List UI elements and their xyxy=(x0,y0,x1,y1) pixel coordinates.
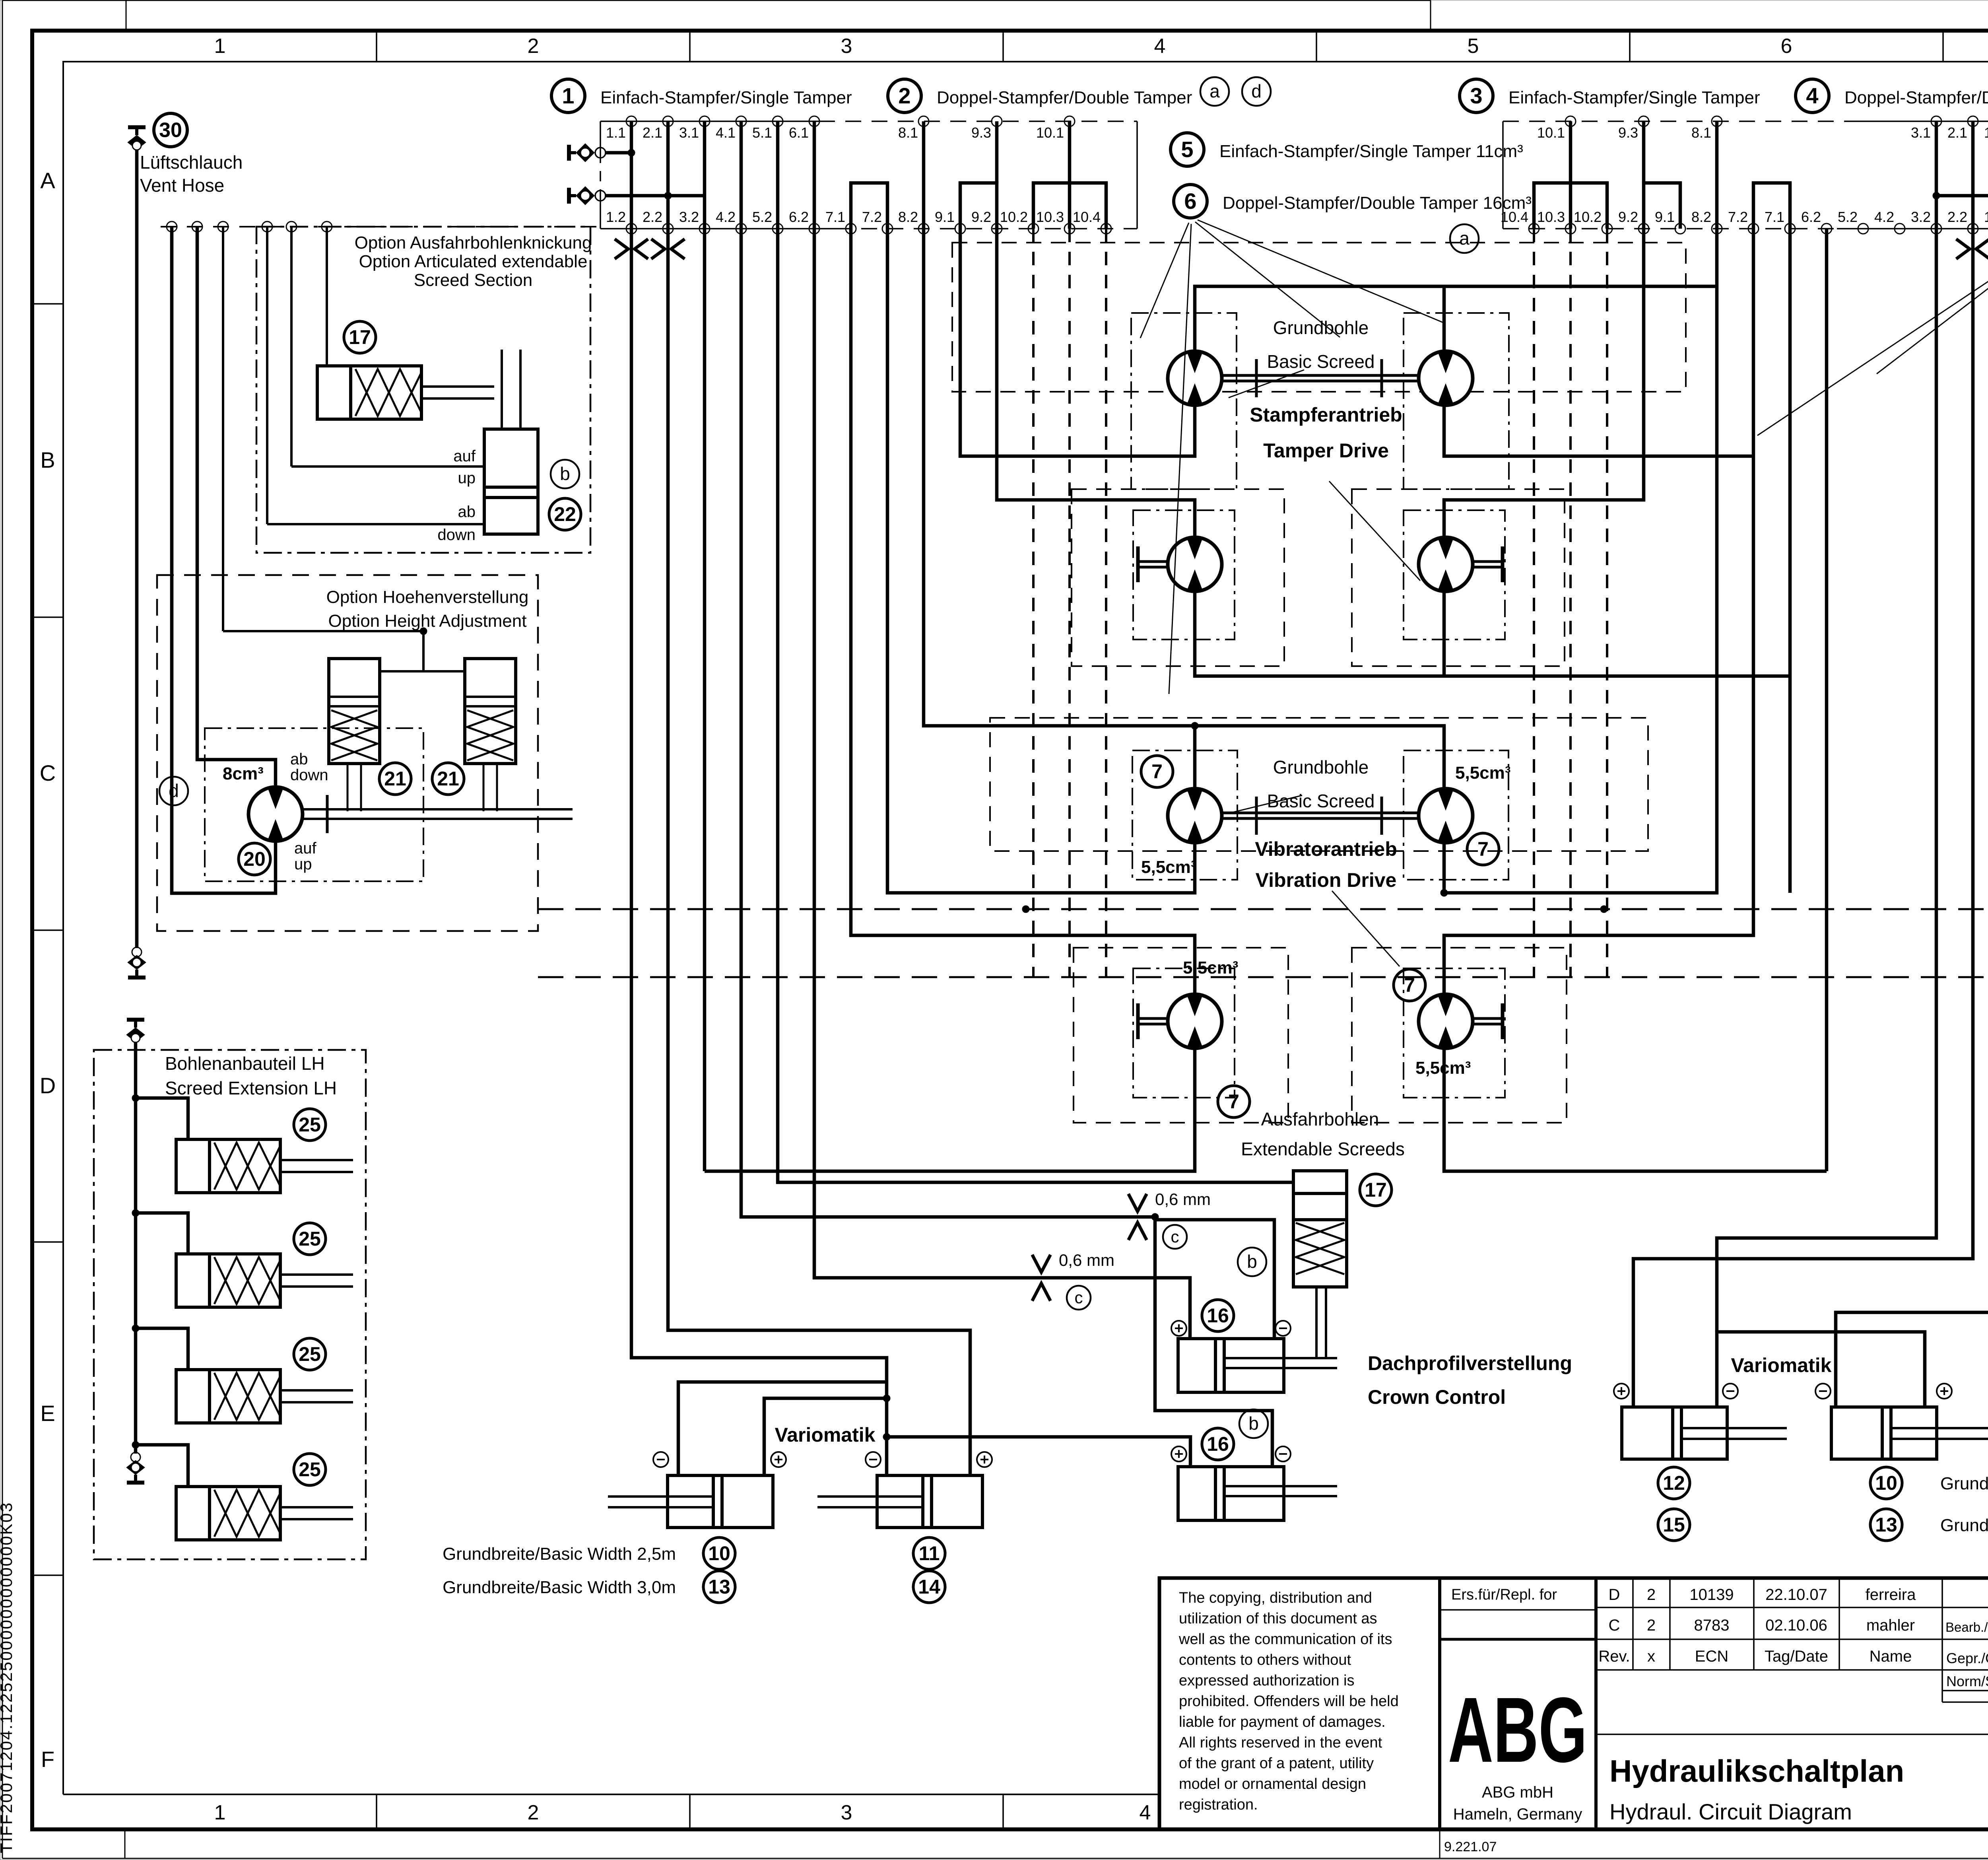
svg-text:Vibratorantrieb: Vibratorantrieb xyxy=(1255,838,1397,860)
svg-text:7: 7 xyxy=(1228,1090,1239,1113)
svg-text:All rights reserved in the eve: All rights reserved in the event xyxy=(1179,1734,1382,1751)
svg-text:5,5cm³: 5,5cm³ xyxy=(1141,857,1196,877)
svg-text:7.2: 7.2 xyxy=(862,209,882,225)
svg-text:7: 7 xyxy=(1151,760,1163,783)
svg-text:9.1: 9.1 xyxy=(1655,209,1675,225)
svg-text:model or ornamental design: model or ornamental design xyxy=(1179,1776,1366,1792)
svg-text:a: a xyxy=(1209,81,1220,101)
svg-text:10.4: 10.4 xyxy=(1073,209,1101,225)
svg-text:Vent Hose: Vent Hose xyxy=(140,175,224,196)
svg-text:6.2: 6.2 xyxy=(1801,209,1821,225)
svg-text:2.1: 2.1 xyxy=(643,124,662,141)
svg-text:7: 7 xyxy=(1404,974,1415,996)
svg-text:up: up xyxy=(458,469,476,487)
svg-text:7.1: 7.1 xyxy=(1765,209,1784,225)
svg-text:Variomatik: Variomatik xyxy=(1731,1354,1832,1376)
svg-text:5.2: 5.2 xyxy=(1838,209,1858,225)
svg-text:9.3: 9.3 xyxy=(1618,124,1638,141)
svg-text:Ausfahrbohlen: Ausfahrbohlen xyxy=(1261,1109,1379,1129)
svg-text:8cm³: 8cm³ xyxy=(223,764,264,783)
svg-text:ABG mbH: ABG mbH xyxy=(1482,1784,1553,1801)
svg-text:5: 5 xyxy=(1468,35,1479,58)
svg-text:x: x xyxy=(1647,1648,1655,1665)
svg-text:22: 22 xyxy=(554,503,576,525)
svg-text:The copying, distribution and: The copying, distribution and xyxy=(1179,1590,1372,1606)
svg-text:c: c xyxy=(1075,1288,1083,1307)
svg-text:Einfach-Stampfer/Single Tamper: Einfach-Stampfer/Single Tamper 11cm³ xyxy=(1219,142,1523,161)
svg-text:10: 10 xyxy=(1875,1472,1897,1494)
svg-text:6: 6 xyxy=(1781,35,1792,58)
svg-text:10.3: 10.3 xyxy=(1036,209,1064,225)
svg-text:Basic Screed: Basic Screed xyxy=(1267,791,1375,811)
svg-text:20: 20 xyxy=(243,848,266,870)
svg-text:Ers.für/Repl. for: Ers.für/Repl. for xyxy=(1451,1586,1557,1603)
svg-text:contents to others without: contents to others without xyxy=(1179,1652,1351,1668)
svg-text:c: c xyxy=(1171,1227,1179,1246)
svg-text:4.1: 4.1 xyxy=(716,124,736,141)
svg-text:4: 4 xyxy=(1154,35,1166,58)
svg-text:Extendable Screeds: Extendable Screeds xyxy=(1241,1139,1405,1159)
svg-text:Basic Screed: Basic Screed xyxy=(1267,351,1375,372)
svg-text:25: 25 xyxy=(299,1343,321,1365)
svg-text:ECN: ECN xyxy=(1695,1648,1728,1665)
svg-text:3.2: 3.2 xyxy=(1911,209,1931,225)
svg-text:b: b xyxy=(560,463,570,484)
svg-text:4.2: 4.2 xyxy=(716,209,736,225)
svg-text:1: 1 xyxy=(214,35,226,58)
svg-text:16: 16 xyxy=(1207,1304,1229,1327)
svg-text:a: a xyxy=(1459,228,1470,249)
svg-text:Doppel-Stampfer/Double Tamper: Doppel-Stampfer/Double Tamper xyxy=(937,88,1192,107)
svg-text:17: 17 xyxy=(349,326,371,348)
svg-text:9.3: 9.3 xyxy=(971,124,991,141)
svg-text:1: 1 xyxy=(562,83,574,108)
svg-text:16: 16 xyxy=(1207,1433,1229,1455)
svg-text:Tag/Date: Tag/Date xyxy=(1765,1648,1828,1665)
svg-text:5: 5 xyxy=(1181,137,1193,162)
svg-text:10.4: 10.4 xyxy=(1501,209,1528,225)
svg-text:5,5cm³: 5,5cm³ xyxy=(1183,958,1238,978)
svg-text:F: F xyxy=(41,1747,54,1772)
svg-text:Einfach-Stampfer/Single Tamper: Einfach-Stampfer/Single Tamper xyxy=(1508,88,1760,107)
svg-text:7.1: 7.1 xyxy=(825,209,845,225)
svg-text:Doppel-Stampfer/Double Tamper: Doppel-Stampfer/Double Tamper 16cm³ xyxy=(1223,193,1532,213)
svg-text:ab: ab xyxy=(458,503,476,521)
svg-text:Crown Control: Crown Control xyxy=(1368,1386,1506,1408)
svg-text:Option Hoehenverstellung: Option Hoehenverstellung xyxy=(326,587,529,607)
svg-text:Option Articulated extendable: Option Articulated extendable xyxy=(359,252,588,271)
svg-text:of the grant of a patent, util: of the grant of a patent, utility xyxy=(1179,1755,1374,1772)
svg-text:Vibration Drive: Vibration Drive xyxy=(1256,869,1397,891)
svg-text:registration.: registration. xyxy=(1179,1796,1258,1813)
svg-text:2.2: 2.2 xyxy=(1947,209,1967,225)
svg-text:9.1: 9.1 xyxy=(935,209,955,225)
svg-text:0,6 mm: 0,6 mm xyxy=(1059,1251,1114,1269)
svg-text:Grundbohle: Grundbohle xyxy=(1273,317,1369,338)
svg-text:Einfach-Stampfer/Single Tamper: Einfach-Stampfer/Single Tamper xyxy=(600,88,852,107)
svg-text:14: 14 xyxy=(918,1576,940,1598)
svg-text:Lüftschlauch: Lüftschlauch xyxy=(140,152,243,173)
svg-text:Hameln, Germany: Hameln, Germany xyxy=(1453,1806,1582,1823)
svg-text:Hydraulikschaltplan: Hydraulikschaltplan xyxy=(1609,1753,1904,1788)
svg-text:auf: auf xyxy=(294,840,316,857)
svg-text:3: 3 xyxy=(841,35,852,58)
svg-text:11: 11 xyxy=(919,1542,940,1565)
svg-text:d: d xyxy=(169,780,179,801)
svg-text:down: down xyxy=(437,526,476,544)
svg-text:Gepr./Chkd.: Gepr./Chkd. xyxy=(1946,1650,1988,1666)
svg-text:Screed Section: Screed Section xyxy=(414,270,532,290)
svg-text:3.1: 3.1 xyxy=(679,124,699,141)
svg-text:12: 12 xyxy=(1663,1472,1685,1494)
svg-text:10.1: 10.1 xyxy=(1036,124,1064,141)
svg-text:1.2: 1.2 xyxy=(1984,209,1988,225)
svg-text:mahler: mahler xyxy=(1866,1617,1915,1634)
svg-text:7: 7 xyxy=(1477,838,1489,860)
svg-text:30: 30 xyxy=(159,119,182,142)
svg-text:15: 15 xyxy=(1663,1514,1685,1536)
svg-text:1.1: 1.1 xyxy=(606,124,626,141)
svg-text:9.221.07: 9.221.07 xyxy=(1444,1839,1497,1854)
svg-text:10.1: 10.1 xyxy=(1537,124,1565,141)
svg-text:2: 2 xyxy=(1647,1617,1656,1634)
svg-text:B: B xyxy=(40,447,55,472)
svg-text:ferreira: ferreira xyxy=(1866,1586,1916,1603)
svg-text:Name: Name xyxy=(1870,1648,1912,1665)
svg-text:Bohlenanbauteil LH: Bohlenanbauteil LH xyxy=(165,1053,325,1074)
svg-text:Hydraul. Circuit Diagram: Hydraul. Circuit Diagram xyxy=(1609,1799,1852,1824)
svg-text:13: 13 xyxy=(708,1576,730,1598)
svg-text:C: C xyxy=(40,760,56,785)
svg-text:up: up xyxy=(294,855,312,873)
svg-text:9.2: 9.2 xyxy=(1618,209,1638,225)
svg-text:3.1: 3.1 xyxy=(1911,124,1931,141)
svg-text:25: 25 xyxy=(299,1114,321,1136)
svg-text:utilization of this document a: utilization of this document as xyxy=(1179,1610,1377,1627)
svg-text:Rev.: Rev. xyxy=(1598,1648,1630,1665)
svg-text:8.1: 8.1 xyxy=(898,124,918,141)
svg-text:D: D xyxy=(40,1073,56,1098)
svg-text:10: 10 xyxy=(708,1542,730,1565)
svg-text:liable for payment of damages.: liable for payment of damages. xyxy=(1179,1714,1386,1730)
svg-text:6: 6 xyxy=(1184,189,1196,214)
svg-text:1.2: 1.2 xyxy=(606,209,626,225)
svg-text:ABG: ABG xyxy=(1448,1678,1587,1782)
svg-text:4: 4 xyxy=(1806,83,1818,108)
svg-text:Option Ausfahrbohlenknickung: Option Ausfahrbohlenknickung xyxy=(355,233,592,253)
svg-text:10.3: 10.3 xyxy=(1537,209,1565,225)
svg-text:2: 2 xyxy=(528,35,539,58)
svg-text:Doppel-Stampfer/Double Tamper: Doppel-Stampfer/Double Tamper xyxy=(1844,88,1988,107)
svg-text:25: 25 xyxy=(299,1458,321,1481)
svg-text:down: down xyxy=(290,766,328,784)
svg-text:10139: 10139 xyxy=(1689,1586,1734,1603)
svg-text:2: 2 xyxy=(898,83,911,108)
svg-text:1: 1 xyxy=(214,1801,226,1824)
svg-text:Grundbreite/Basic Width 2,5m: Grundbreite/Basic Width 2,5m xyxy=(1940,1474,1988,1493)
svg-text:25: 25 xyxy=(299,1228,321,1250)
svg-text:3: 3 xyxy=(1470,83,1482,108)
svg-text:8.2: 8.2 xyxy=(898,209,918,225)
svg-text:02.10.06: 02.10.06 xyxy=(1765,1617,1827,1634)
svg-text:4.2: 4.2 xyxy=(1874,209,1894,225)
svg-text:13: 13 xyxy=(1875,1514,1897,1536)
svg-text:Screed Extension LH: Screed Extension LH xyxy=(165,1078,337,1098)
svg-text:TIFF20071204.12252500000000000: TIFF20071204.122525000000000000K03 xyxy=(0,1502,16,1853)
svg-text:3.2: 3.2 xyxy=(679,209,699,225)
svg-text:C: C xyxy=(1609,1617,1620,1634)
svg-text:5,5cm³: 5,5cm³ xyxy=(1415,1058,1471,1078)
svg-text:6.2: 6.2 xyxy=(789,209,809,225)
svg-text:6.1: 6.1 xyxy=(789,124,809,141)
svg-text:10.2: 10.2 xyxy=(1000,209,1028,225)
svg-text:22.10.07: 22.10.07 xyxy=(1765,1586,1827,1603)
svg-text:A: A xyxy=(40,168,55,193)
svg-text:21: 21 xyxy=(437,768,459,790)
svg-text:Variomatik: Variomatik xyxy=(775,1424,876,1446)
svg-text:Tamper Drive: Tamper Drive xyxy=(1263,439,1389,462)
svg-text:well as the communication of i: well as the communication of its xyxy=(1178,1631,1392,1648)
svg-text:auf: auf xyxy=(453,447,476,465)
svg-text:10.2: 10.2 xyxy=(1574,209,1602,225)
svg-text:expressed authorization is: expressed authorization is xyxy=(1179,1672,1354,1689)
svg-text:Option Height Adjustment: Option Height Adjustment xyxy=(328,611,527,631)
svg-text:21: 21 xyxy=(384,768,406,790)
svg-text:Grundbohle: Grundbohle xyxy=(1273,757,1369,777)
svg-text:b: b xyxy=(1248,1413,1259,1434)
svg-text:Bearb./Drawn: Bearb./Drawn xyxy=(1945,1620,1988,1635)
svg-text:2: 2 xyxy=(1647,1586,1656,1603)
svg-text:1.1: 1.1 xyxy=(1984,124,1988,141)
svg-text:Norm/Stds.: Norm/Stds. xyxy=(1946,1673,1988,1689)
svg-text:5.2: 5.2 xyxy=(752,209,772,225)
svg-text:Grundbreite/Basic Width 3,0m: Grundbreite/Basic Width 3,0m xyxy=(1940,1516,1988,1535)
svg-text:Dachprofilverstellung: Dachprofilverstellung xyxy=(1368,1352,1572,1374)
svg-text:5.1: 5.1 xyxy=(752,124,772,141)
svg-text:Stampferantrieb: Stampferantrieb xyxy=(1250,404,1402,426)
svg-text:8783: 8783 xyxy=(1694,1617,1730,1634)
svg-text:ab: ab xyxy=(290,750,308,768)
svg-text:b: b xyxy=(1247,1251,1257,1272)
svg-text:2: 2 xyxy=(528,1801,539,1824)
svg-text:3: 3 xyxy=(841,1801,852,1824)
svg-text:E: E xyxy=(40,1401,55,1426)
svg-text:Grundbreite/Basic Width 2,5m: Grundbreite/Basic Width 2,5m xyxy=(443,1544,676,1564)
svg-text:4: 4 xyxy=(1140,1801,1151,1824)
svg-text:2.1: 2.1 xyxy=(1947,124,1967,141)
svg-text:Grundbreite/Basic Width 3,0m: Grundbreite/Basic Width 3,0m xyxy=(443,1578,676,1597)
svg-text:8.2: 8.2 xyxy=(1691,209,1711,225)
svg-text:17: 17 xyxy=(1365,1179,1387,1201)
svg-text:D: D xyxy=(1609,1586,1620,1603)
svg-text:8.1: 8.1 xyxy=(1691,124,1711,141)
svg-text:5,5cm³: 5,5cm³ xyxy=(1455,763,1510,783)
svg-text:7.2: 7.2 xyxy=(1728,209,1748,225)
svg-text:0,6 mm: 0,6 mm xyxy=(1155,1190,1211,1209)
svg-text:d: d xyxy=(1251,81,1262,101)
svg-text:9.2: 9.2 xyxy=(971,209,991,225)
svg-text:prohibited. Offenders will be: prohibited. Offenders will be held xyxy=(1179,1693,1399,1710)
svg-text:2.2: 2.2 xyxy=(643,209,662,225)
